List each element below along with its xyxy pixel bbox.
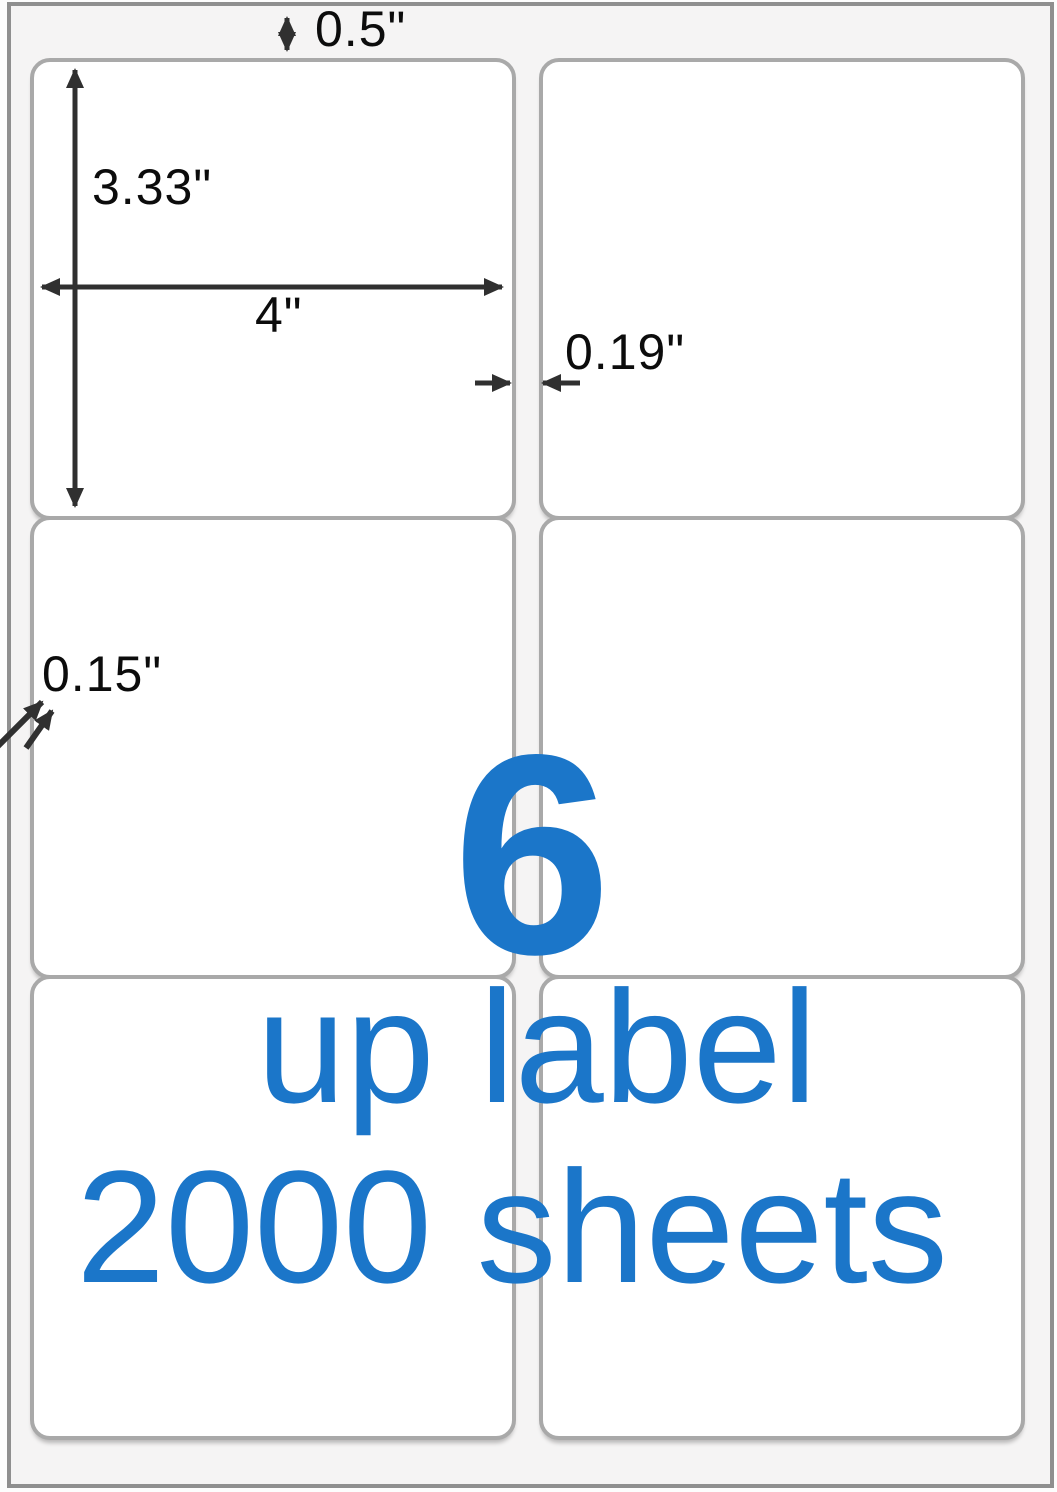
label-cell (539, 516, 1025, 979)
top-margin-dimension: 0.5" (315, 4, 406, 54)
label-width-dimension: 4" (255, 290, 303, 340)
label-cell (539, 58, 1025, 520)
product-caption-line1: up label (257, 967, 817, 1127)
label-height-dimension: 3.33" (92, 162, 212, 212)
label-sheet-product-image: 0.5" 3.33" 4" 0.19" 0.15" 6 up label 200… (0, 0, 1057, 1492)
label-cell (30, 516, 516, 979)
column-gap-dimension: 0.19" (565, 327, 685, 377)
product-count: 6 (453, 713, 612, 998)
edge-margin-dimension: 0.15" (42, 649, 162, 699)
product-caption-line2: 2000 sheets (76, 1147, 948, 1307)
